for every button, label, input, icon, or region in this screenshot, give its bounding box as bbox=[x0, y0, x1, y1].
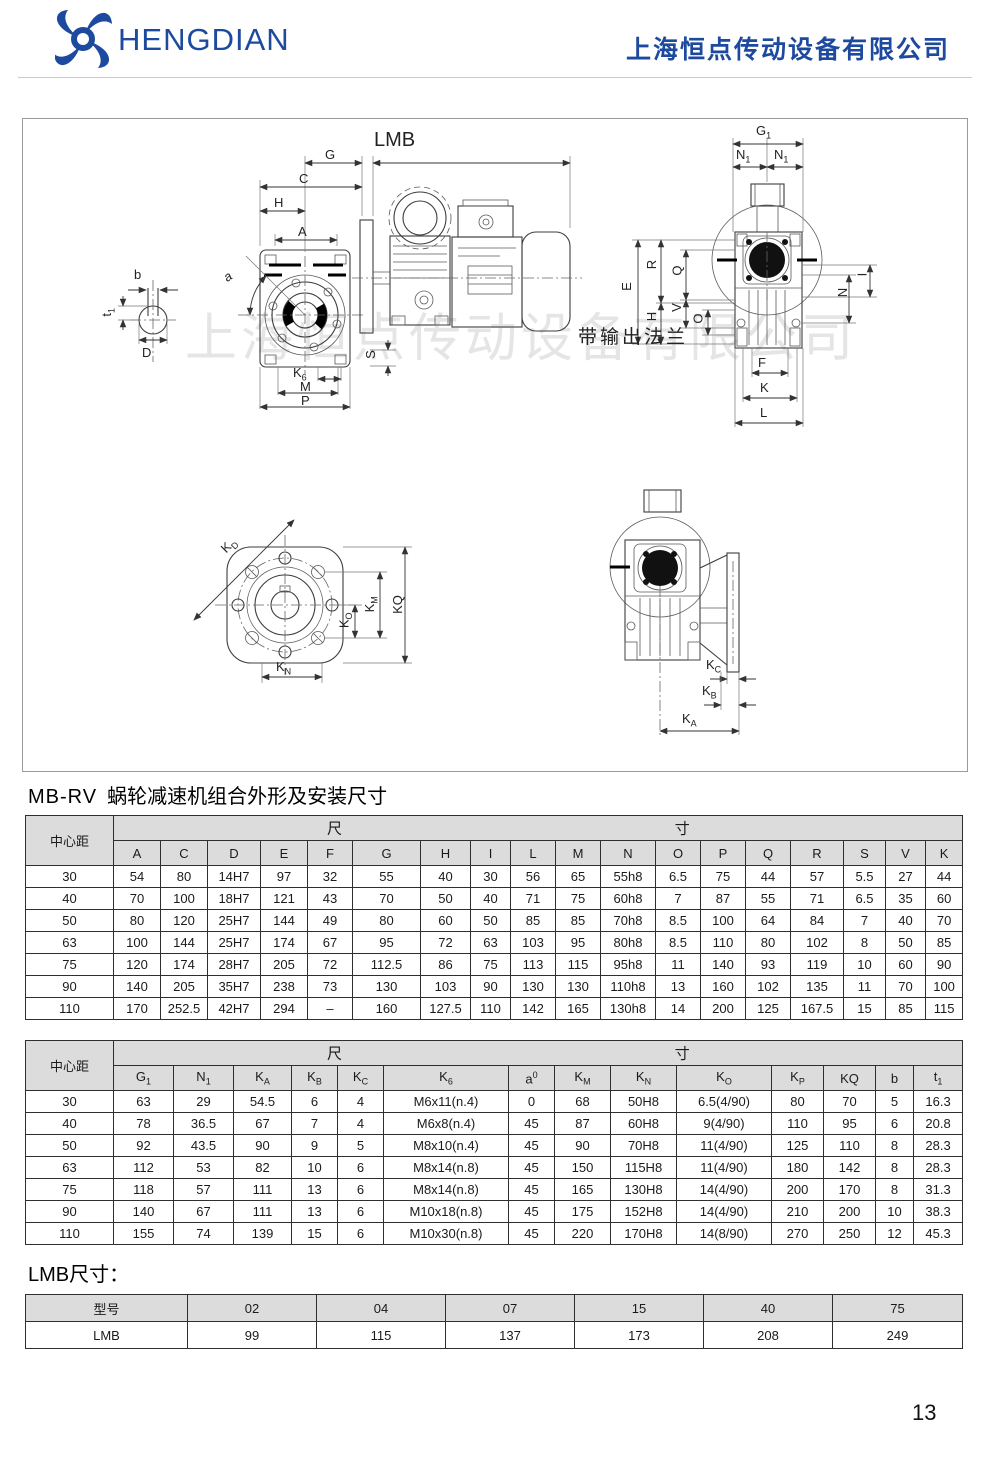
value-cell: 140 bbox=[114, 1201, 174, 1223]
lmb-table: 型号020407154075 LMB99115137173208249 bbox=[25, 1294, 963, 1349]
value-cell: 180 bbox=[772, 1157, 824, 1179]
value-cell: 120 bbox=[161, 910, 208, 932]
value-cell: 72 bbox=[421, 932, 471, 954]
value-cell: 14H7 bbox=[208, 866, 261, 888]
dim-label-n1-left: N1 bbox=[736, 148, 750, 165]
value-cell: 70H8 bbox=[611, 1135, 677, 1157]
value-cell: 102 bbox=[746, 976, 791, 998]
value-cell: 99 bbox=[188, 1322, 317, 1349]
dim-label-ka: KA bbox=[682, 712, 697, 729]
value-cell: 71 bbox=[511, 888, 556, 910]
value-cell: 5 bbox=[338, 1135, 384, 1157]
dim-label-f: F bbox=[758, 356, 766, 369]
value-cell: 8 bbox=[844, 932, 886, 954]
value-cell: 200 bbox=[701, 998, 746, 1020]
column-header: G1 bbox=[114, 1066, 174, 1091]
dim-label-kn: KN bbox=[276, 660, 291, 677]
value-cell: 6 bbox=[338, 1179, 384, 1201]
value-cell: 160 bbox=[701, 976, 746, 998]
value-cell: 144 bbox=[261, 910, 308, 932]
value-cell: 210 bbox=[772, 1201, 824, 1223]
value-cell: 95 bbox=[556, 932, 601, 954]
value-cell: 130 bbox=[353, 976, 421, 998]
table-row: LMB99115137173208249 bbox=[26, 1322, 963, 1349]
dim-label-e: E bbox=[620, 282, 633, 291]
value-cell: 90 bbox=[926, 954, 963, 976]
column-header: N bbox=[601, 841, 656, 866]
value-cell: 170 bbox=[824, 1179, 876, 1201]
lmb-section-title: LMB尺寸： bbox=[28, 1258, 129, 1287]
value-cell: 110 bbox=[824, 1135, 876, 1157]
row-key-cell: 40 bbox=[26, 1113, 114, 1135]
value-cell: 110 bbox=[471, 998, 511, 1020]
value-cell: 294 bbox=[261, 998, 308, 1020]
dim-label-ko: KO bbox=[338, 612, 355, 628]
value-cell: 110 bbox=[772, 1113, 824, 1135]
dim-label-km: KM bbox=[363, 596, 380, 612]
column-header: 型号 bbox=[26, 1295, 188, 1322]
dim-label-g1: G1 bbox=[756, 124, 771, 141]
size-group-left: 尺 bbox=[327, 818, 342, 839]
value-cell: 125 bbox=[772, 1135, 824, 1157]
value-cell: 56 bbox=[511, 866, 556, 888]
value-cell: 28.3 bbox=[914, 1135, 963, 1157]
value-cell: M10x18(n.8) bbox=[384, 1201, 509, 1223]
value-cell: 6.5(4/90) bbox=[677, 1091, 772, 1113]
value-cell: 167.5 bbox=[791, 998, 844, 1020]
value-cell: 200 bbox=[824, 1201, 876, 1223]
value-cell: 70 bbox=[353, 888, 421, 910]
value-cell: 8 bbox=[876, 1135, 914, 1157]
row-key-cell: 63 bbox=[26, 1157, 114, 1179]
column-header: KC bbox=[338, 1066, 384, 1091]
value-cell: 115 bbox=[317, 1322, 446, 1349]
value-cell: 28H7 bbox=[208, 954, 261, 976]
size-group-header: 尺 寸 bbox=[114, 1041, 963, 1066]
value-cell: 173 bbox=[575, 1322, 704, 1349]
value-cell: 60 bbox=[886, 954, 926, 976]
value-cell: 103 bbox=[421, 976, 471, 998]
value-cell: 11 bbox=[656, 954, 701, 976]
value-cell: 165 bbox=[556, 998, 601, 1020]
value-cell: 10 bbox=[844, 954, 886, 976]
row-key-cell: 90 bbox=[26, 1201, 114, 1223]
value-cell: 6 bbox=[338, 1201, 384, 1223]
row-key-cell: 110 bbox=[26, 1223, 114, 1245]
value-cell: 70h8 bbox=[601, 910, 656, 932]
value-cell: 65 bbox=[556, 866, 601, 888]
value-cell: 6 bbox=[338, 1223, 384, 1245]
value-cell: 44 bbox=[746, 866, 791, 888]
value-cell: 6 bbox=[876, 1113, 914, 1135]
value-cell: 85 bbox=[886, 998, 926, 1020]
column-header: t1 bbox=[914, 1066, 963, 1091]
value-cell: 50 bbox=[421, 888, 471, 910]
table-row: 6310014425H7174679572631039580h88.511080… bbox=[26, 932, 963, 954]
value-cell: 11(4/90) bbox=[677, 1157, 772, 1179]
value-cell: 205 bbox=[261, 954, 308, 976]
value-cell: 119 bbox=[791, 954, 844, 976]
value-cell: 6 bbox=[338, 1157, 384, 1179]
value-cell: 115H8 bbox=[611, 1157, 677, 1179]
value-cell: 165 bbox=[555, 1179, 611, 1201]
value-cell: 50 bbox=[471, 910, 511, 932]
dim-label-r: R bbox=[645, 260, 658, 269]
value-cell: 4 bbox=[338, 1091, 384, 1113]
value-cell: 140 bbox=[114, 976, 161, 998]
value-cell: 127.5 bbox=[421, 998, 471, 1020]
value-cell: 45.3 bbox=[914, 1223, 963, 1245]
corner-header: 中心距 bbox=[26, 816, 114, 866]
table-row: 9014067111136M10x18(n.8)45175152H814(4/9… bbox=[26, 1201, 963, 1223]
value-cell: 139 bbox=[234, 1223, 292, 1245]
value-cell: 54.5 bbox=[234, 1091, 292, 1113]
value-cell: M6x11(n.4) bbox=[384, 1091, 509, 1113]
column-header: O bbox=[656, 841, 701, 866]
value-cell: 31.3 bbox=[914, 1179, 963, 1201]
value-cell: 43 bbox=[308, 888, 353, 910]
column-header: KA bbox=[234, 1066, 292, 1091]
company-name: 上海恒点传动设备有限公司 bbox=[626, 30, 950, 66]
value-cell: 64 bbox=[746, 910, 791, 932]
table-body: LMB99115137173208249 bbox=[26, 1322, 963, 1349]
table-row: 110170252.542H7294–160127.5110142165130h… bbox=[26, 998, 963, 1020]
table-row: 407836.56774M6x8(n.4)458760H89(4/90)1109… bbox=[26, 1113, 963, 1135]
value-cell: 100 bbox=[114, 932, 161, 954]
value-cell: 57 bbox=[791, 866, 844, 888]
value-cell: 55 bbox=[746, 888, 791, 910]
column-header: KQ bbox=[824, 1066, 876, 1091]
row-key-cell: 50 bbox=[26, 910, 114, 932]
corner-header: 中心距 bbox=[26, 1041, 114, 1091]
dim-label-o: O bbox=[692, 313, 705, 323]
column-header: b bbox=[876, 1066, 914, 1091]
value-cell: 45 bbox=[509, 1223, 555, 1245]
value-cell: 15 bbox=[292, 1223, 338, 1245]
value-cell: 10 bbox=[876, 1201, 914, 1223]
value-cell: 70 bbox=[114, 888, 161, 910]
table-row: 11015574139156M10x30(n.8)45220170H814(8/… bbox=[26, 1223, 963, 1245]
table-row: 509243.59095M8x10(n.4)459070H811(4/90)12… bbox=[26, 1135, 963, 1157]
dimension-table-flange: 中心距 尺 寸 G1N1KAKBKCK6a0KMKNKOKPKQbt1 3063… bbox=[25, 1040, 963, 1245]
table-row: 9014020535H72387313010390130130110h81316… bbox=[26, 976, 963, 998]
value-cell: 95h8 bbox=[601, 954, 656, 976]
value-cell: 118 bbox=[114, 1179, 174, 1201]
value-cell: 32 bbox=[308, 866, 353, 888]
value-cell: 45 bbox=[509, 1179, 555, 1201]
value-cell: 85 bbox=[556, 910, 601, 932]
value-cell: 6.5 bbox=[656, 866, 701, 888]
value-cell: 142 bbox=[511, 998, 556, 1020]
value-cell: 80 bbox=[161, 866, 208, 888]
value-cell: 80h8 bbox=[601, 932, 656, 954]
size-group-right: 寸 bbox=[675, 1043, 690, 1064]
value-cell: 42H7 bbox=[208, 998, 261, 1020]
page-number: 13 bbox=[912, 1400, 936, 1426]
section-title-model: MB-RV bbox=[28, 786, 97, 808]
value-cell: 45 bbox=[509, 1157, 555, 1179]
dim-label-v: V bbox=[670, 303, 683, 312]
technical-drawings: LMB G C H A a b t1 D S K6 M P G1 N1 N1 E… bbox=[22, 118, 968, 772]
output-flange-note: 带输出法兰 bbox=[578, 322, 688, 349]
value-cell: 142 bbox=[824, 1157, 876, 1179]
value-cell: 67 bbox=[234, 1113, 292, 1135]
dim-label-n1-right: N1 bbox=[774, 148, 788, 165]
value-cell: 14(4/90) bbox=[677, 1179, 772, 1201]
row-key-cell: 75 bbox=[26, 954, 114, 976]
assembly-view bbox=[118, 156, 582, 409]
dim-label-kq: KQ bbox=[391, 595, 404, 614]
value-cell: 95 bbox=[353, 932, 421, 954]
value-cell: 70 bbox=[824, 1091, 876, 1113]
value-cell: 35 bbox=[886, 888, 926, 910]
table-group-row: 中心距 尺 寸 bbox=[26, 1041, 963, 1066]
dim-label-h: H bbox=[274, 196, 283, 209]
column-header: 40 bbox=[704, 1295, 833, 1322]
dim-label-q: Q bbox=[671, 265, 684, 275]
row-key-cell: 40 bbox=[26, 888, 114, 910]
end-view bbox=[632, 138, 877, 427]
row-key-cell: 30 bbox=[26, 1091, 114, 1113]
dim-label-h2: H bbox=[645, 312, 658, 321]
value-cell: 50H8 bbox=[611, 1091, 677, 1113]
value-cell: 97 bbox=[261, 866, 308, 888]
value-cell: 100 bbox=[161, 888, 208, 910]
column-header: KM bbox=[555, 1066, 611, 1091]
value-cell: 54 bbox=[114, 866, 161, 888]
value-cell: 74 bbox=[174, 1223, 234, 1245]
value-cell: 30 bbox=[471, 866, 511, 888]
value-cell: 14(8/90) bbox=[677, 1223, 772, 1245]
column-header: KB bbox=[292, 1066, 338, 1091]
value-cell: 75 bbox=[471, 954, 511, 976]
value-cell: 87 bbox=[701, 888, 746, 910]
value-cell: 29 bbox=[174, 1091, 234, 1113]
value-cell: 50 bbox=[886, 932, 926, 954]
size-group-header: 尺 寸 bbox=[114, 816, 963, 841]
value-cell: 6 bbox=[292, 1091, 338, 1113]
value-cell: 102 bbox=[791, 932, 844, 954]
column-header: V bbox=[886, 841, 926, 866]
value-cell: 8.5 bbox=[656, 910, 701, 932]
value-cell: 55h8 bbox=[601, 866, 656, 888]
value-cell: 160 bbox=[353, 998, 421, 1020]
table-column-row: ACDEFGHILMNOPQRSVK bbox=[26, 841, 963, 866]
value-cell: 7 bbox=[292, 1113, 338, 1135]
brand-name: HENGDIAN bbox=[118, 22, 290, 58]
dim-label-p: P bbox=[301, 394, 310, 407]
dim-label-i: I bbox=[855, 273, 868, 277]
dim-label-l: L bbox=[760, 406, 767, 419]
value-cell: 175 bbox=[555, 1201, 611, 1223]
value-cell: 103 bbox=[511, 932, 556, 954]
section-title-text: 蜗轮减速机组合外形及安装尺寸 bbox=[107, 786, 387, 808]
value-cell: 125 bbox=[746, 998, 791, 1020]
value-cell: 115 bbox=[926, 998, 963, 1020]
value-cell: 14(4/90) bbox=[677, 1201, 772, 1223]
value-cell: 20.8 bbox=[914, 1113, 963, 1135]
row-key-cell: 90 bbox=[26, 976, 114, 998]
dim-label-k: K bbox=[760, 381, 769, 394]
value-cell: 27 bbox=[886, 866, 926, 888]
value-cell: 71 bbox=[791, 888, 844, 910]
value-cell: 130H8 bbox=[611, 1179, 677, 1201]
value-cell: 63 bbox=[114, 1091, 174, 1113]
value-cell: 12 bbox=[876, 1223, 914, 1245]
column-header: K6 bbox=[384, 1066, 509, 1091]
value-cell: 130h8 bbox=[601, 998, 656, 1020]
value-cell: M8x10(n.4) bbox=[384, 1135, 509, 1157]
value-cell: 205 bbox=[161, 976, 208, 998]
value-cell: 60 bbox=[926, 888, 963, 910]
value-cell: 68 bbox=[555, 1091, 611, 1113]
value-cell: 45 bbox=[509, 1201, 555, 1223]
column-header: 04 bbox=[317, 1295, 446, 1322]
value-cell: – bbox=[308, 998, 353, 1020]
dim-label-g: G bbox=[325, 148, 335, 161]
value-cell: 36.5 bbox=[174, 1113, 234, 1135]
table-row: 407010018H712143705040717560h878755716.5… bbox=[26, 888, 963, 910]
dim-label-a: A bbox=[298, 225, 307, 238]
row-key-cell: 63 bbox=[26, 932, 114, 954]
value-cell: 174 bbox=[261, 932, 308, 954]
row-key-cell: 75 bbox=[26, 1179, 114, 1201]
value-cell: 155 bbox=[114, 1223, 174, 1245]
row-key-cell: 110 bbox=[26, 998, 114, 1020]
column-header: 02 bbox=[188, 1295, 317, 1322]
value-cell: 252.5 bbox=[161, 998, 208, 1020]
value-cell: 16.3 bbox=[914, 1091, 963, 1113]
value-cell: 4 bbox=[338, 1113, 384, 1135]
value-cell: 25H7 bbox=[208, 910, 261, 932]
row-key-cell: 50 bbox=[26, 1135, 114, 1157]
value-cell: 90 bbox=[234, 1135, 292, 1157]
value-cell: 67 bbox=[174, 1201, 234, 1223]
header-divider bbox=[18, 77, 972, 78]
value-cell: 13 bbox=[656, 976, 701, 998]
value-cell: 220 bbox=[555, 1223, 611, 1245]
value-cell: 170H8 bbox=[611, 1223, 677, 1245]
table-row: 631125382106M8x14(n.8)45150115H811(4/90)… bbox=[26, 1157, 963, 1179]
value-cell: 120 bbox=[114, 954, 161, 976]
column-header: A bbox=[114, 841, 161, 866]
size-group-right: 寸 bbox=[675, 818, 690, 839]
value-cell: 11 bbox=[844, 976, 886, 998]
value-cell: 5.5 bbox=[844, 866, 886, 888]
value-cell: 8 bbox=[876, 1179, 914, 1201]
value-cell: 200 bbox=[772, 1179, 824, 1201]
value-cell: 18H7 bbox=[208, 888, 261, 910]
column-header: H bbox=[421, 841, 471, 866]
value-cell: 44 bbox=[926, 866, 963, 888]
value-cell: 115 bbox=[556, 954, 601, 976]
value-cell: 95 bbox=[824, 1113, 876, 1135]
dim-label-lmb: LMB bbox=[374, 130, 415, 150]
value-cell: 63 bbox=[471, 932, 511, 954]
value-cell: 7 bbox=[844, 910, 886, 932]
value-cell: 53 bbox=[174, 1157, 234, 1179]
value-cell: 137 bbox=[446, 1322, 575, 1349]
value-cell: 9 bbox=[292, 1135, 338, 1157]
column-header: KO bbox=[677, 1066, 772, 1091]
value-cell: 45 bbox=[509, 1113, 555, 1135]
value-cell: 113 bbox=[511, 954, 556, 976]
value-cell: 92 bbox=[114, 1135, 174, 1157]
value-cell: 249 bbox=[833, 1322, 963, 1349]
dim-label-m: M bbox=[300, 380, 311, 393]
value-cell: 38.3 bbox=[914, 1201, 963, 1223]
flange-side-view bbox=[610, 490, 756, 735]
column-header: L bbox=[511, 841, 556, 866]
value-cell: 250 bbox=[824, 1223, 876, 1245]
value-cell: 93 bbox=[746, 954, 791, 976]
hengdian-pinwheel-logo-icon bbox=[55, 8, 113, 75]
value-cell: 80 bbox=[114, 910, 161, 932]
value-cell: 100 bbox=[926, 976, 963, 998]
table-row: 30632954.564M6x11(n.4)06850H86.5(4/90)80… bbox=[26, 1091, 963, 1113]
column-header: a0 bbox=[509, 1066, 555, 1091]
column-header: C bbox=[161, 841, 208, 866]
value-cell: 140 bbox=[701, 954, 746, 976]
value-cell: 112 bbox=[114, 1157, 174, 1179]
size-group-left: 尺 bbox=[327, 1043, 342, 1064]
value-cell: 112.5 bbox=[353, 954, 421, 976]
column-header: P bbox=[701, 841, 746, 866]
dim-label-d: D bbox=[142, 346, 151, 359]
value-cell: 90 bbox=[471, 976, 511, 998]
value-cell: 110 bbox=[701, 932, 746, 954]
column-header: D bbox=[208, 841, 261, 866]
value-cell: 75 bbox=[701, 866, 746, 888]
column-header: Q bbox=[746, 841, 791, 866]
value-cell: 45 bbox=[509, 1135, 555, 1157]
value-cell: 28.3 bbox=[914, 1157, 963, 1179]
value-cell: 111 bbox=[234, 1201, 292, 1223]
value-cell: 111 bbox=[234, 1179, 292, 1201]
dim-label-n: N bbox=[836, 288, 849, 297]
drawings-svg bbox=[22, 118, 968, 772]
value-cell: 10 bbox=[292, 1157, 338, 1179]
value-cell: 82 bbox=[234, 1157, 292, 1179]
row-key-cell: 30 bbox=[26, 866, 114, 888]
value-cell: 152H8 bbox=[611, 1201, 677, 1223]
catalog-page: { "header": { "brand": "HENGDIAN", "comp… bbox=[0, 0, 990, 1483]
column-header: G bbox=[353, 841, 421, 866]
dim-label-kb: KB bbox=[702, 684, 717, 701]
value-cell: 55 bbox=[353, 866, 421, 888]
value-cell: 43.5 bbox=[174, 1135, 234, 1157]
column-header: E bbox=[261, 841, 308, 866]
value-cell: 40 bbox=[886, 910, 926, 932]
value-cell: 15 bbox=[844, 998, 886, 1020]
value-cell: 174 bbox=[161, 954, 208, 976]
value-cell: M8x14(n.8) bbox=[384, 1157, 509, 1179]
value-cell: 60H8 bbox=[611, 1113, 677, 1135]
value-cell: 86 bbox=[421, 954, 471, 976]
value-cell: M8x14(n.8) bbox=[384, 1179, 509, 1201]
column-header: S bbox=[844, 841, 886, 866]
column-header: R bbox=[791, 841, 844, 866]
value-cell: 144 bbox=[161, 932, 208, 954]
column-header: F bbox=[308, 841, 353, 866]
value-cell: 49 bbox=[308, 910, 353, 932]
value-cell: 13 bbox=[292, 1179, 338, 1201]
dim-label-t1: t1 bbox=[100, 308, 117, 317]
table-row: 30548014H79732554030566555h86.57544575.5… bbox=[26, 866, 963, 888]
value-cell: 130 bbox=[556, 976, 601, 998]
section-title: MB-RV蜗轮减速机组合外形及安装尺寸 bbox=[28, 780, 387, 809]
value-cell: 80 bbox=[772, 1091, 824, 1113]
